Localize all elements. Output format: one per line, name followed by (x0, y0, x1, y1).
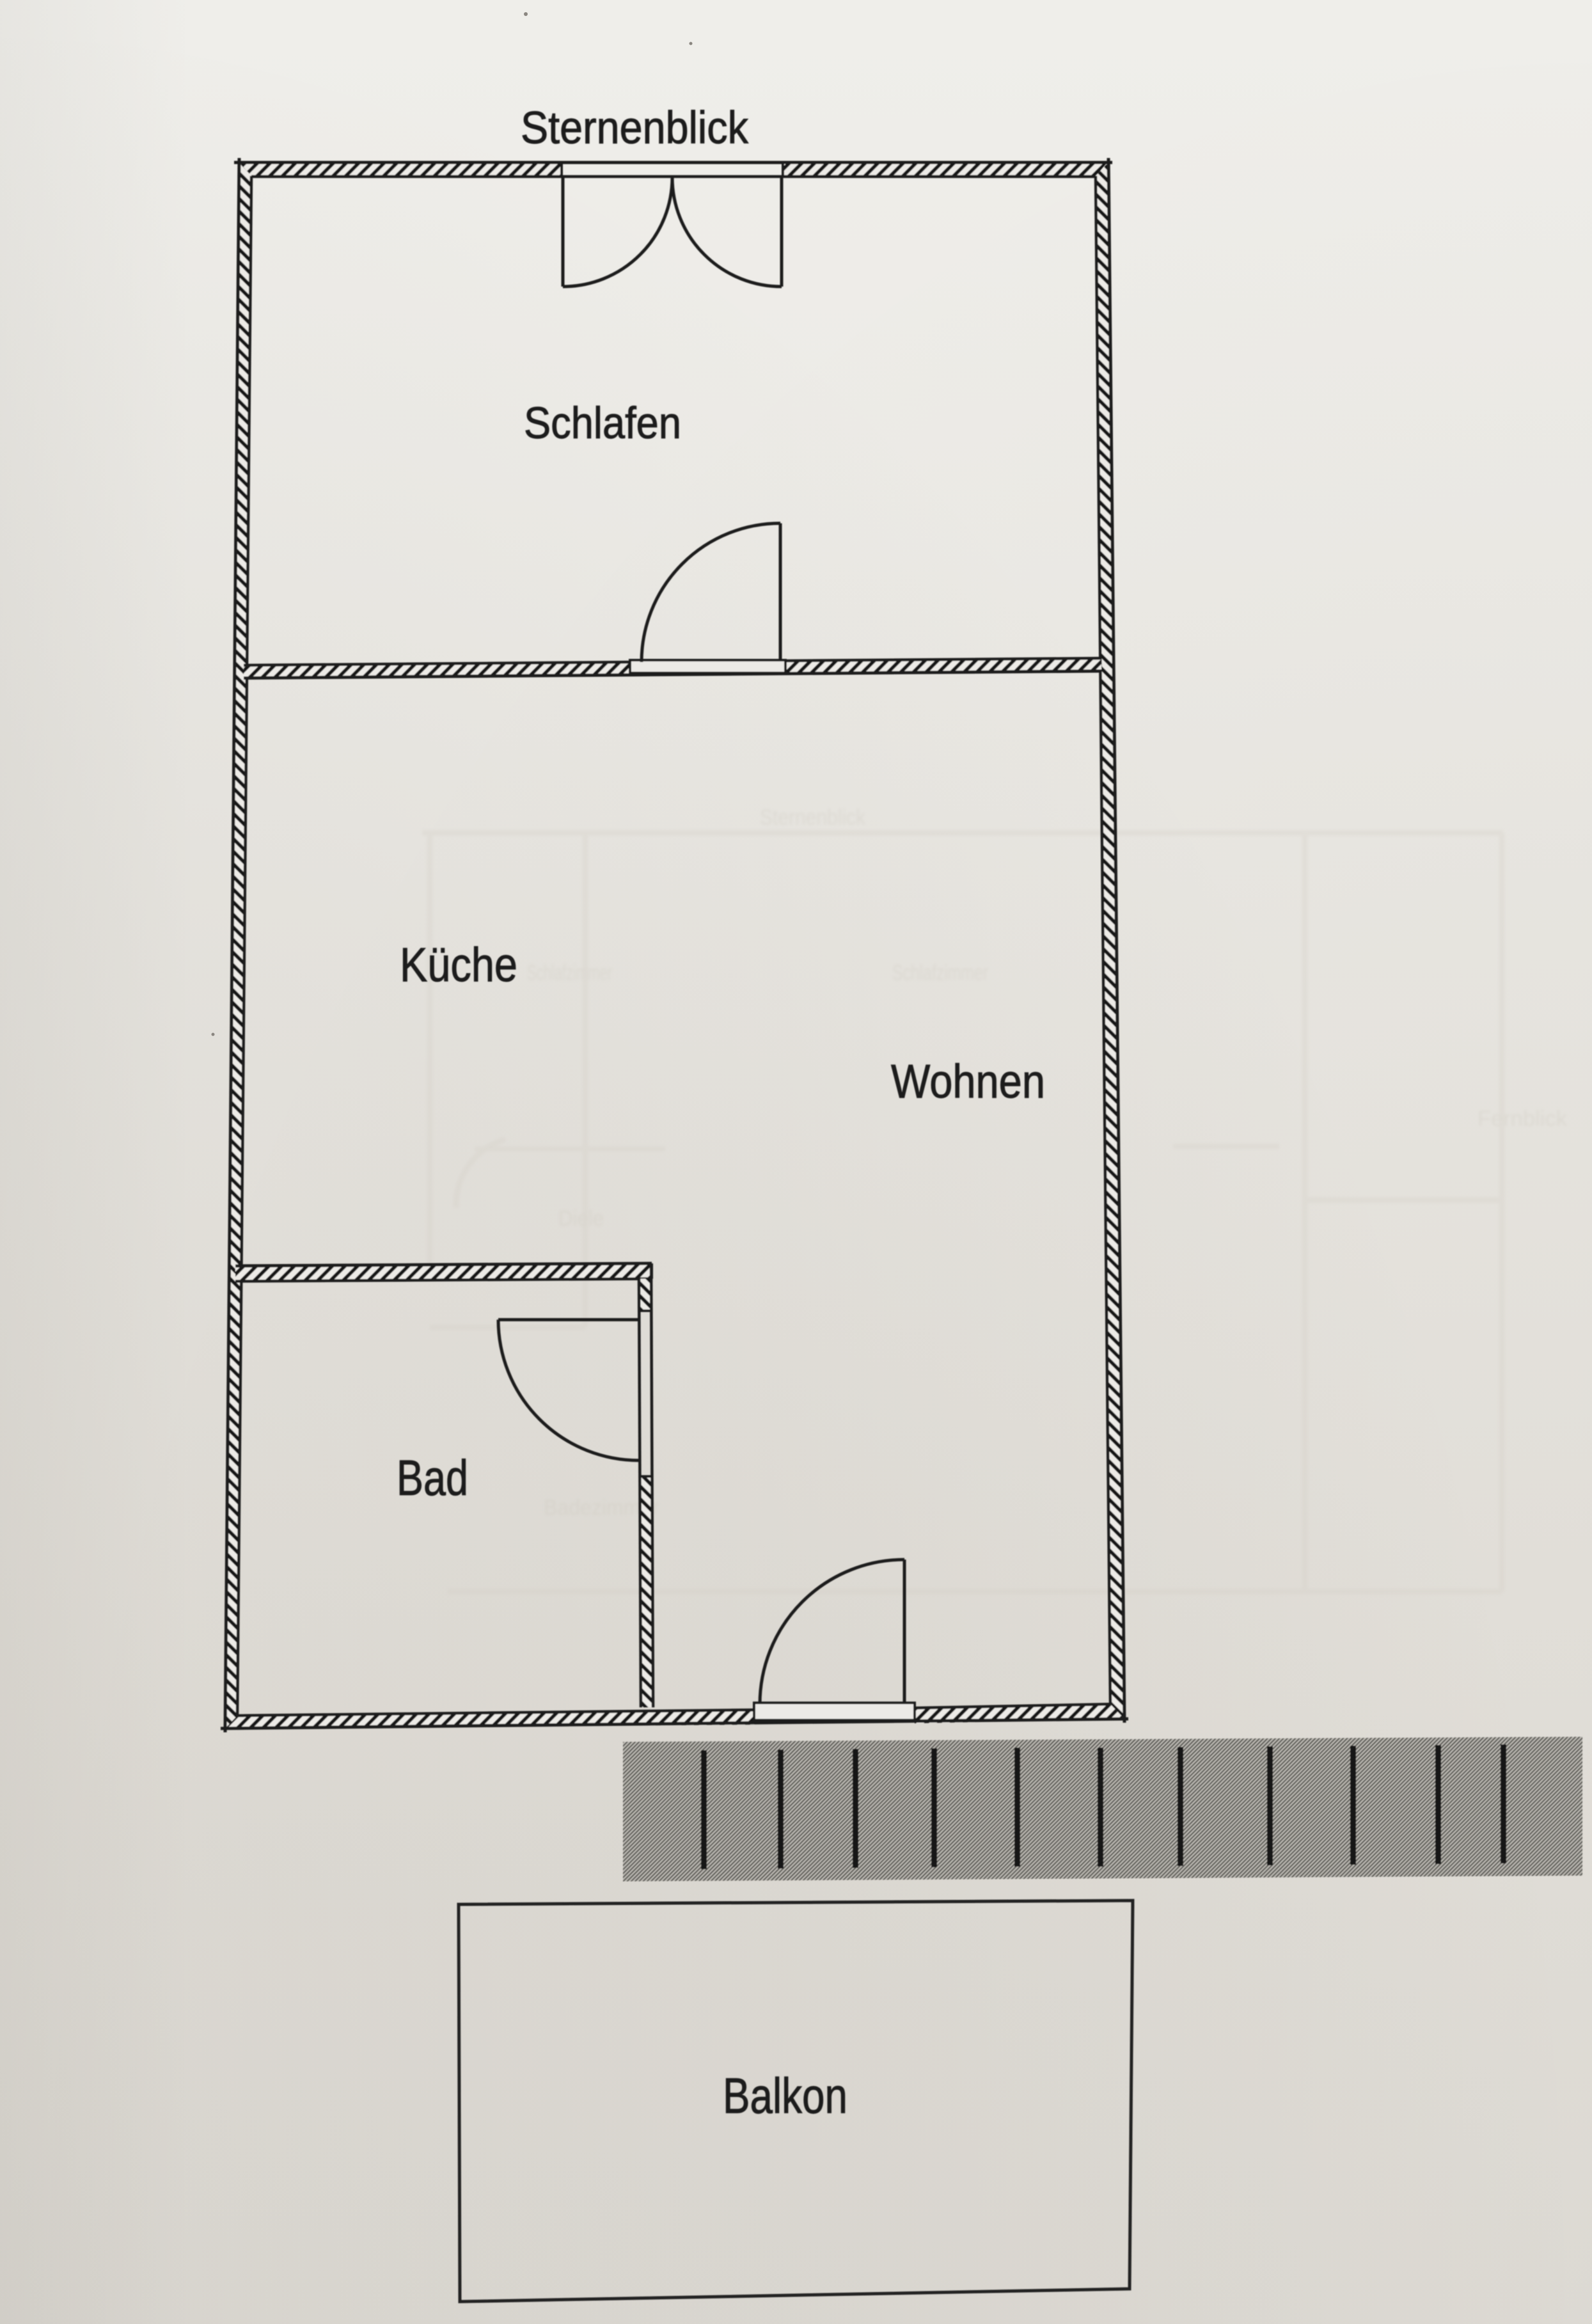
svg-text:Schlafen: Schlafen (524, 398, 681, 448)
svg-text:Sternenblick: Sternenblick (760, 805, 866, 830)
svg-text:Wohnen: Wohnen (891, 1055, 1045, 1108)
svg-text:Schlafzimmer: Schlafzimmer (892, 961, 988, 985)
svg-text:Diele: Diele (558, 1206, 604, 1231)
svg-text:Sternenblick: Sternenblick (521, 103, 748, 154)
svg-text:Balkon: Balkon (723, 2067, 847, 2124)
svg-text:Fernblick: Fernblick (1478, 1107, 1568, 1131)
svg-text:Küche: Küche (400, 938, 517, 992)
svg-text:Schlafzimmer: Schlafzimmer (527, 961, 612, 985)
svg-text:Bad: Bad (397, 1450, 468, 1506)
